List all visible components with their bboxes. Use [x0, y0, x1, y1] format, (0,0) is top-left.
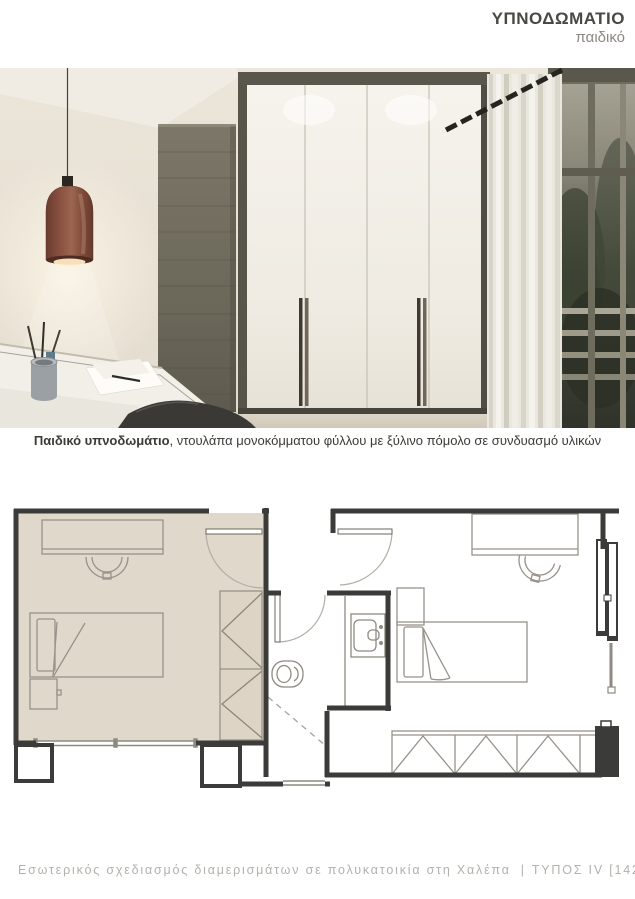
caption-rest: , ντουλάπα μονοκόμματου φύλλου με ξύλινο… [170, 433, 602, 448]
right-room-furniture [392, 514, 597, 775]
footer-project: Εσωτερικός σχεδιασμός διαμερισμάτων σε π… [18, 863, 511, 877]
page-footer: Εσωτερικός σχεδιασμός διαμερισμάτων σε π… [18, 863, 618, 877]
door-leaf [275, 595, 280, 642]
wardrobe-symbol [220, 591, 262, 740]
nightstand-symbol [397, 588, 424, 625]
spotlight-glow [385, 95, 437, 125]
spotlight-glow [283, 95, 335, 125]
page-title: ΥΠΝΟΔΩΜΑΤΙΟ [492, 8, 625, 29]
footer-type: ΤΥΠΟΣ IV [142 τ.μ.] [532, 863, 635, 877]
shower-door-symbol [268, 697, 326, 746]
door-leaf [206, 529, 262, 534]
wardrobe-doors [247, 85, 481, 408]
bedroom-render-drawing [0, 68, 635, 428]
chair-symbol [514, 555, 560, 587]
sink-symbol [351, 614, 385, 657]
wardrobe-symbol [392, 731, 597, 775]
page-subtitle: παιδικό [492, 29, 625, 47]
floor-plan [10, 497, 625, 797]
sliding-door-symbol [597, 540, 617, 693]
toilet-symbol [272, 661, 303, 687]
plan-windows [34, 739, 325, 785]
door-leaf [338, 529, 392, 534]
caption-lead: Παιδικό υπνοδωμάτιο [34, 433, 170, 448]
wardrobe-top-beam [238, 72, 490, 85]
footer-separator: | [521, 863, 526, 877]
floor-plan-drawing [10, 497, 625, 797]
bed-symbol [397, 622, 527, 682]
render-caption: Παιδικό υπνοδωμάτιο, ντουλάπα μονοκόμματ… [0, 433, 635, 448]
page-header: ΥΠΝΟΔΩΜΑΤΙΟ παιδικό [492, 8, 625, 47]
bedroom-render [0, 68, 635, 428]
lamp-shade [46, 186, 93, 260]
